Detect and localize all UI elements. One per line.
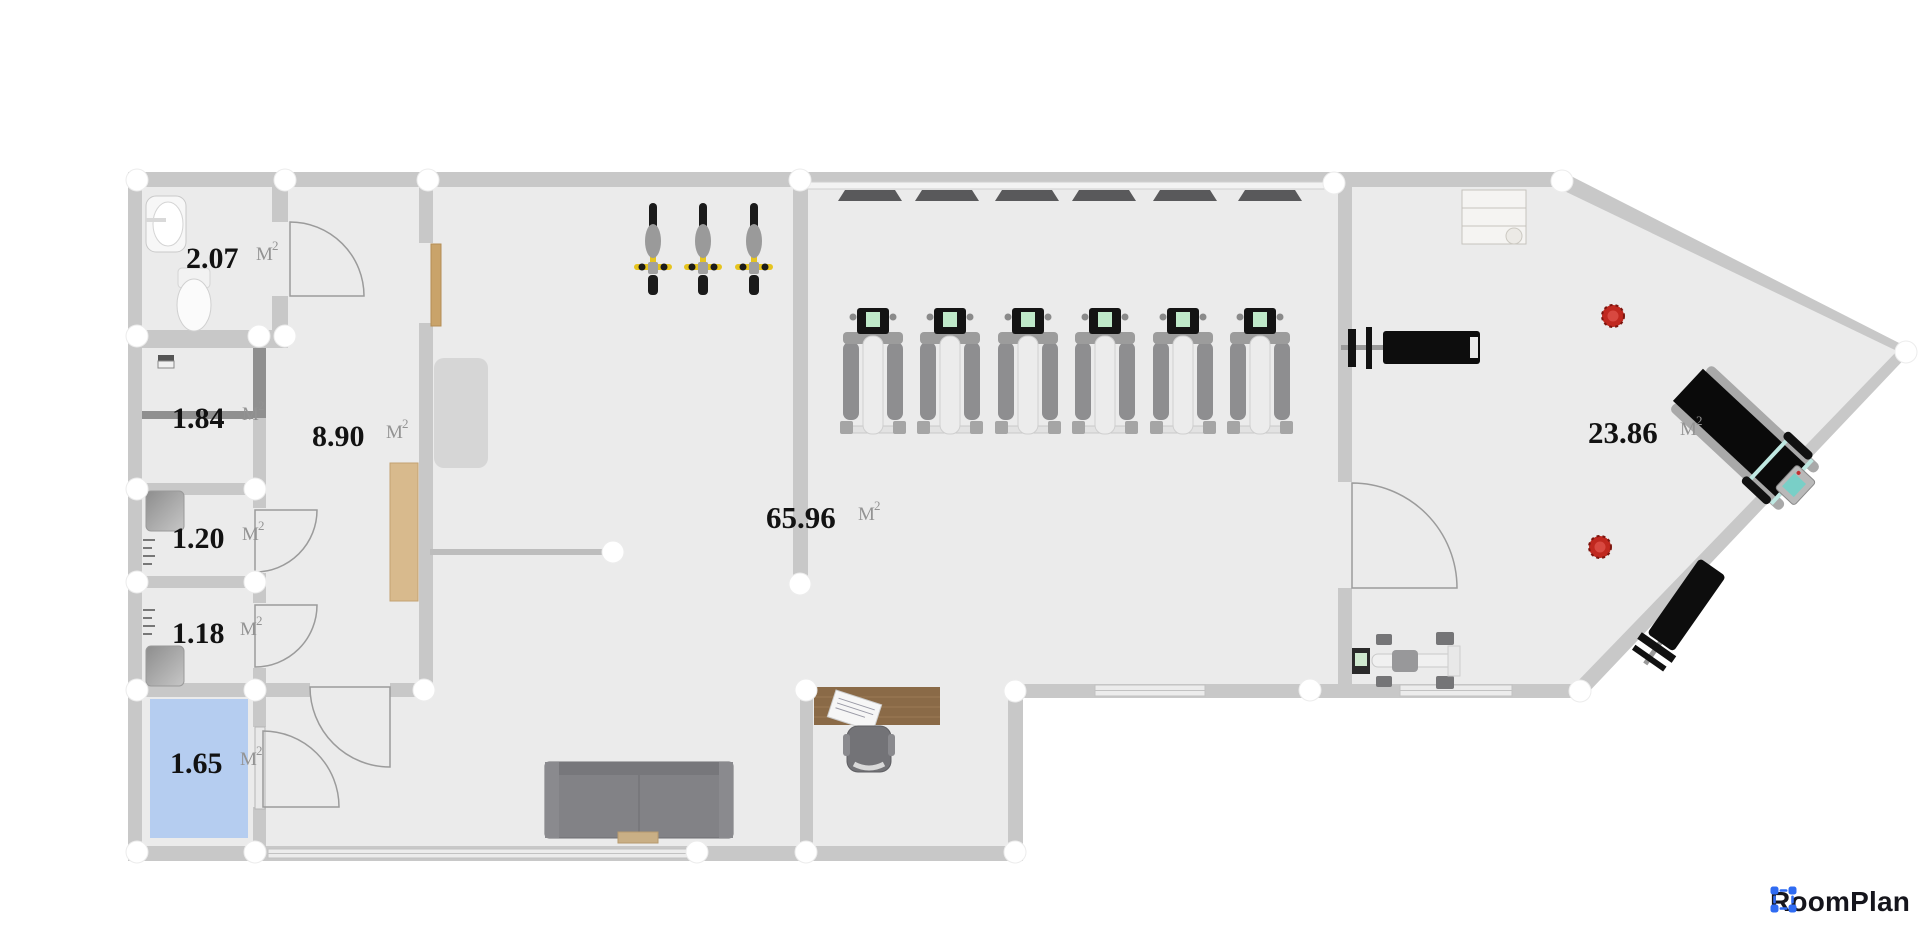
storage-mat[interactable] [434, 358, 488, 468]
room-area-value: 23.86 [1588, 415, 1658, 450]
room-area-value: 2.07 [186, 242, 239, 275]
room-area-value: 1.84 [172, 402, 225, 435]
toilet[interactable] [177, 268, 211, 331]
room-area-unit-exp: 2 [272, 238, 279, 253]
coffee-table[interactable] [618, 832, 658, 843]
wall-office-left[interactable] [800, 690, 813, 846]
wall-node[interactable] [1569, 680, 1591, 702]
wall-wc-right-top[interactable] [272, 187, 288, 222]
room-area-unit: M [386, 422, 403, 443]
sink[interactable] [146, 196, 186, 252]
wall-node[interactable] [795, 679, 817, 701]
reception-counter[interactable] [390, 463, 418, 601]
wall-node[interactable] [1004, 841, 1026, 863]
wall-studio-left-bottom[interactable] [1338, 588, 1352, 698]
wall-node[interactable] [413, 679, 435, 701]
wall-node[interactable] [1299, 679, 1321, 701]
room-area-unit: M [1680, 419, 1697, 440]
room-area-unit-exp: 2 [256, 613, 263, 628]
room-area-unit: M [242, 404, 259, 425]
roomplan-logo: RoomPlan [1770, 886, 1910, 918]
room-area-value: 1.20 [172, 522, 225, 555]
room-area-unit: M [858, 504, 875, 525]
wall-thin-partition[interactable] [430, 549, 612, 555]
wall-node[interactable] [244, 841, 266, 863]
room-area-value: 65.96 [766, 500, 836, 535]
window-studio-bottom[interactable] [1400, 685, 1512, 696]
exercise-mat[interactable] [1153, 190, 1217, 201]
washing-machine-icon[interactable] [158, 355, 174, 368]
room-area-unit-exp: 2 [256, 743, 263, 758]
plant[interactable] [1589, 536, 1611, 558]
shower-tray-b[interactable] [146, 646, 184, 686]
wall-node[interactable] [126, 325, 148, 347]
sofa[interactable] [545, 762, 733, 838]
room-area-unit: M [256, 244, 273, 265]
room-area-unit: M [240, 749, 257, 770]
wall-node[interactable] [274, 169, 296, 191]
wall-node[interactable] [244, 571, 266, 593]
room-area-unit-exp: 2 [258, 398, 265, 413]
exercise-mat[interactable] [838, 190, 902, 201]
wall-node[interactable] [1004, 680, 1026, 702]
wall-node[interactable] [1895, 341, 1917, 363]
wall-node[interactable] [602, 541, 624, 563]
room-area-unit-exp: 2 [402, 416, 409, 431]
exercise-mat[interactable] [1072, 190, 1136, 201]
window-lobby[interactable] [268, 849, 692, 858]
floorplan-canvas: 2.07 M 2 1.84 M 2 1.20 M 2 1.18 M 2 1.65… [0, 0, 1920, 928]
wall-node[interactable] [789, 573, 811, 595]
exercise-mat[interactable] [915, 190, 979, 201]
wall-node[interactable] [126, 679, 148, 701]
door-hall-leaf[interactable] [431, 244, 441, 326]
wall-node[interactable] [126, 478, 148, 500]
plant[interactable] [1602, 305, 1624, 327]
wall-hall-right-main[interactable] [419, 323, 433, 690]
exercise-mat[interactable] [1238, 190, 1302, 201]
office-chair[interactable] [843, 726, 895, 772]
wall-node[interactable] [1323, 172, 1345, 194]
room-area-value: 1.65 [170, 747, 223, 780]
selection-corners-icon [1770, 886, 1797, 913]
wall-hall-right-top[interactable] [419, 187, 433, 243]
exercise-mat[interactable] [995, 190, 1059, 201]
wall-node[interactable] [274, 325, 296, 347]
wall-node[interactable] [795, 841, 817, 863]
wall-node[interactable] [244, 679, 266, 701]
wall-node[interactable] [244, 478, 266, 500]
wall-leftcol-4[interactable] [253, 807, 266, 846]
room-area-unit: M [240, 619, 257, 640]
wall-node[interactable] [126, 169, 148, 191]
room-area-value: 1.18 [172, 617, 225, 650]
wall-node[interactable] [126, 841, 148, 863]
room-area-unit: M [242, 524, 259, 545]
window-gym-top[interactable] [806, 182, 1332, 189]
room-area-value: 8.90 [312, 420, 365, 453]
shelf-rack[interactable] [1462, 190, 1526, 244]
wall-node[interactable] [417, 169, 439, 191]
wall-node[interactable] [1551, 170, 1573, 192]
wall-node[interactable] [126, 571, 148, 593]
window-gym-bottom[interactable] [1095, 685, 1205, 696]
wall-node[interactable] [789, 169, 811, 191]
wall-node[interactable] [248, 325, 270, 347]
wall-node[interactable] [686, 841, 708, 863]
room-area-unit-exp: 2 [258, 518, 265, 533]
room-area-unit-exp: 2 [874, 498, 881, 513]
room-area-unit-exp: 2 [1696, 413, 1703, 428]
